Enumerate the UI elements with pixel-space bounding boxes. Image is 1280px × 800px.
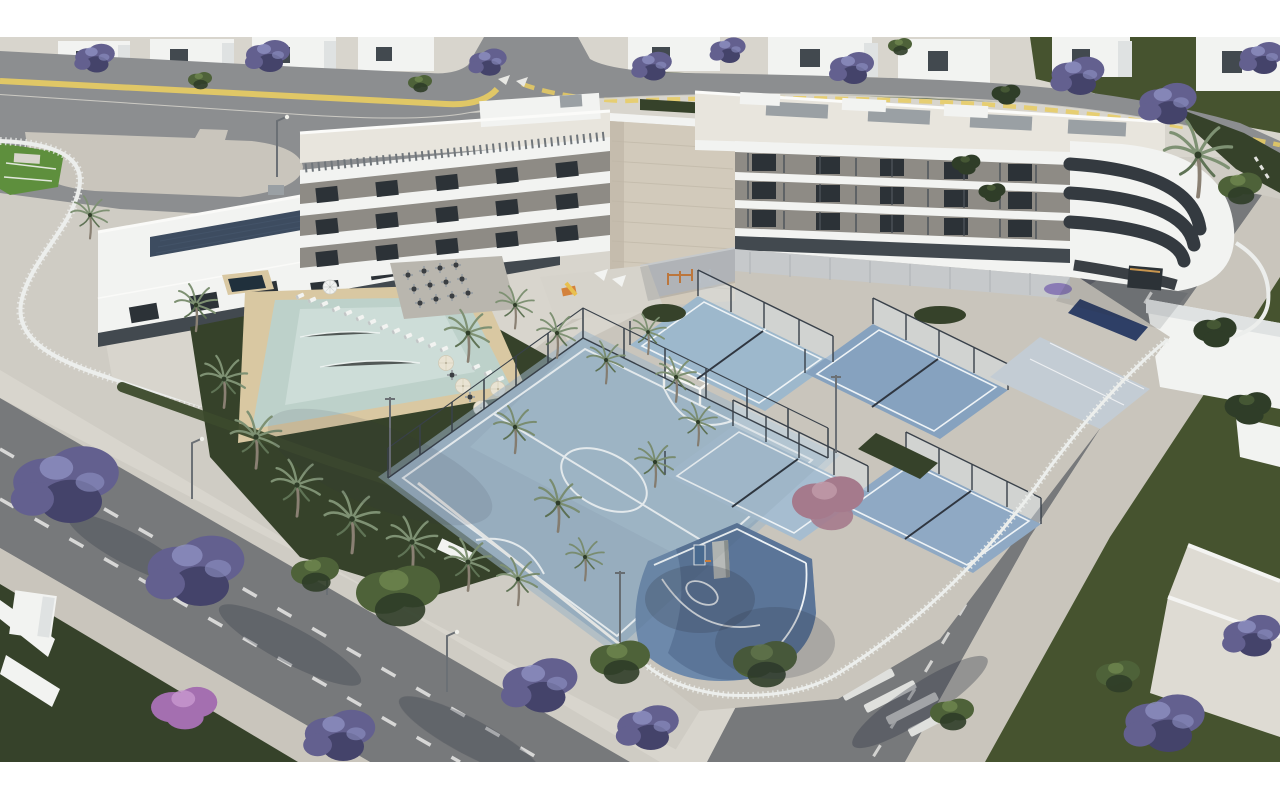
render-svg: [0, 37, 1280, 762]
pool-parasol: [323, 280, 337, 294]
screenshot-canvas: [0, 0, 1280, 800]
rooftop-unit: [268, 185, 284, 195]
rooftop-unit: [560, 94, 583, 108]
jacaranda-tree: [616, 705, 679, 750]
green-tree: [590, 641, 650, 685]
restaurant-terrace: [390, 256, 516, 319]
aerial-render: [0, 37, 1280, 762]
